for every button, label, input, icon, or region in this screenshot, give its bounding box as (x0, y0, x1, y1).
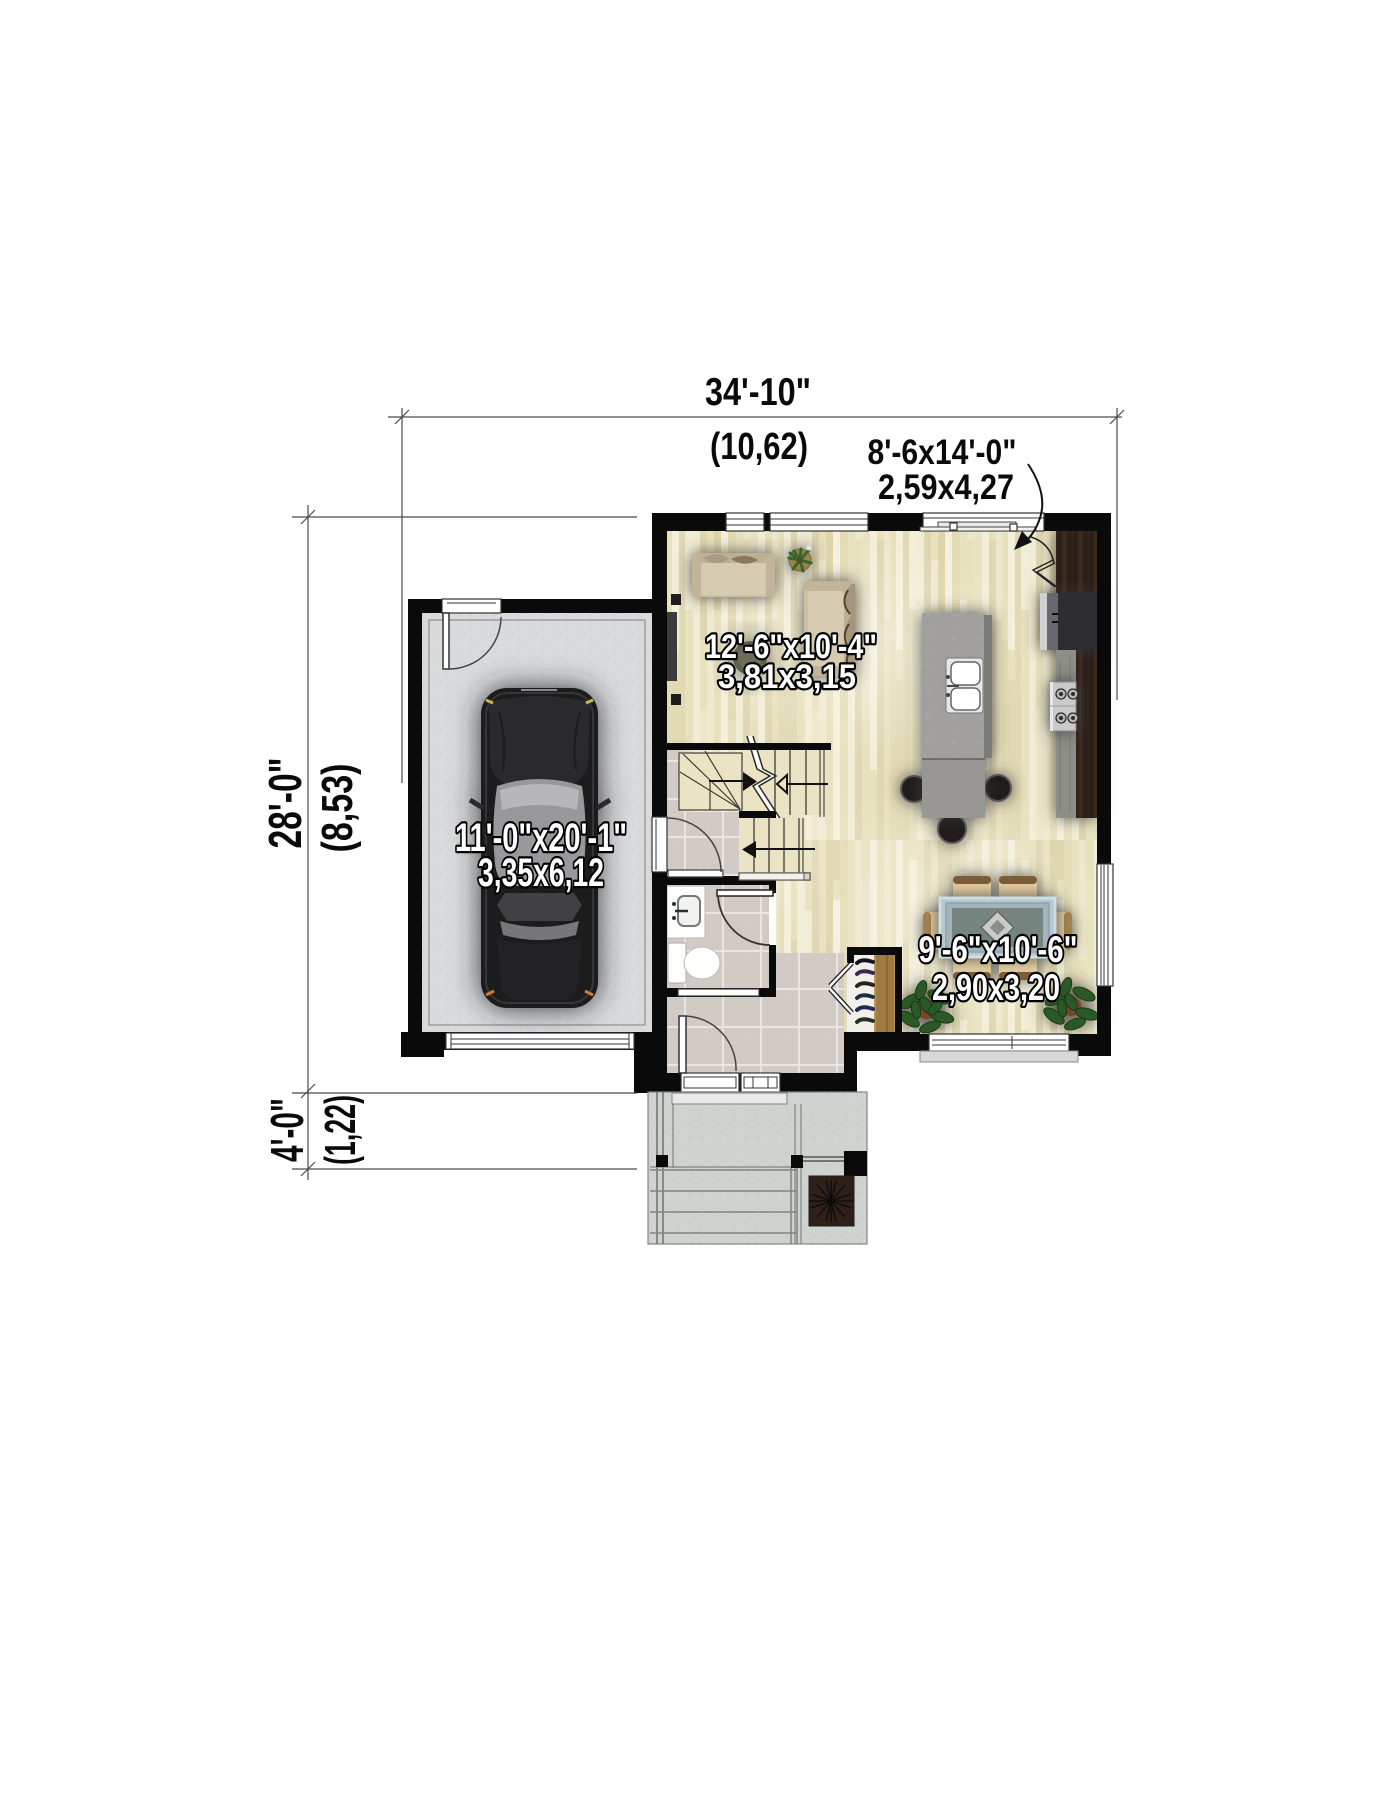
svg-text:4'-0": 4'-0" (261, 1098, 313, 1162)
svg-text:28'-0": 28'-0" (259, 758, 311, 849)
svg-text:3,81x3,15: 3,81x3,15 (718, 658, 856, 696)
svg-text:8'-6x14'-0": 8'-6x14'-0" (868, 433, 1017, 472)
svg-text:2,59x4,27: 2,59x4,27 (878, 468, 1014, 507)
svg-text:(8,53): (8,53) (313, 764, 362, 853)
svg-text:(10,62): (10,62) (710, 426, 808, 468)
svg-text:2,90x3,20: 2,90x3,20 (932, 967, 1060, 1008)
svg-text:34'-10": 34'-10" (705, 371, 811, 414)
svg-text:(1,22): (1,22) (316, 1095, 365, 1165)
svg-text:9'-6"x10'-6": 9'-6"x10'-6" (919, 929, 1078, 970)
svg-text:3,35x6,12: 3,35x6,12 (478, 851, 604, 895)
